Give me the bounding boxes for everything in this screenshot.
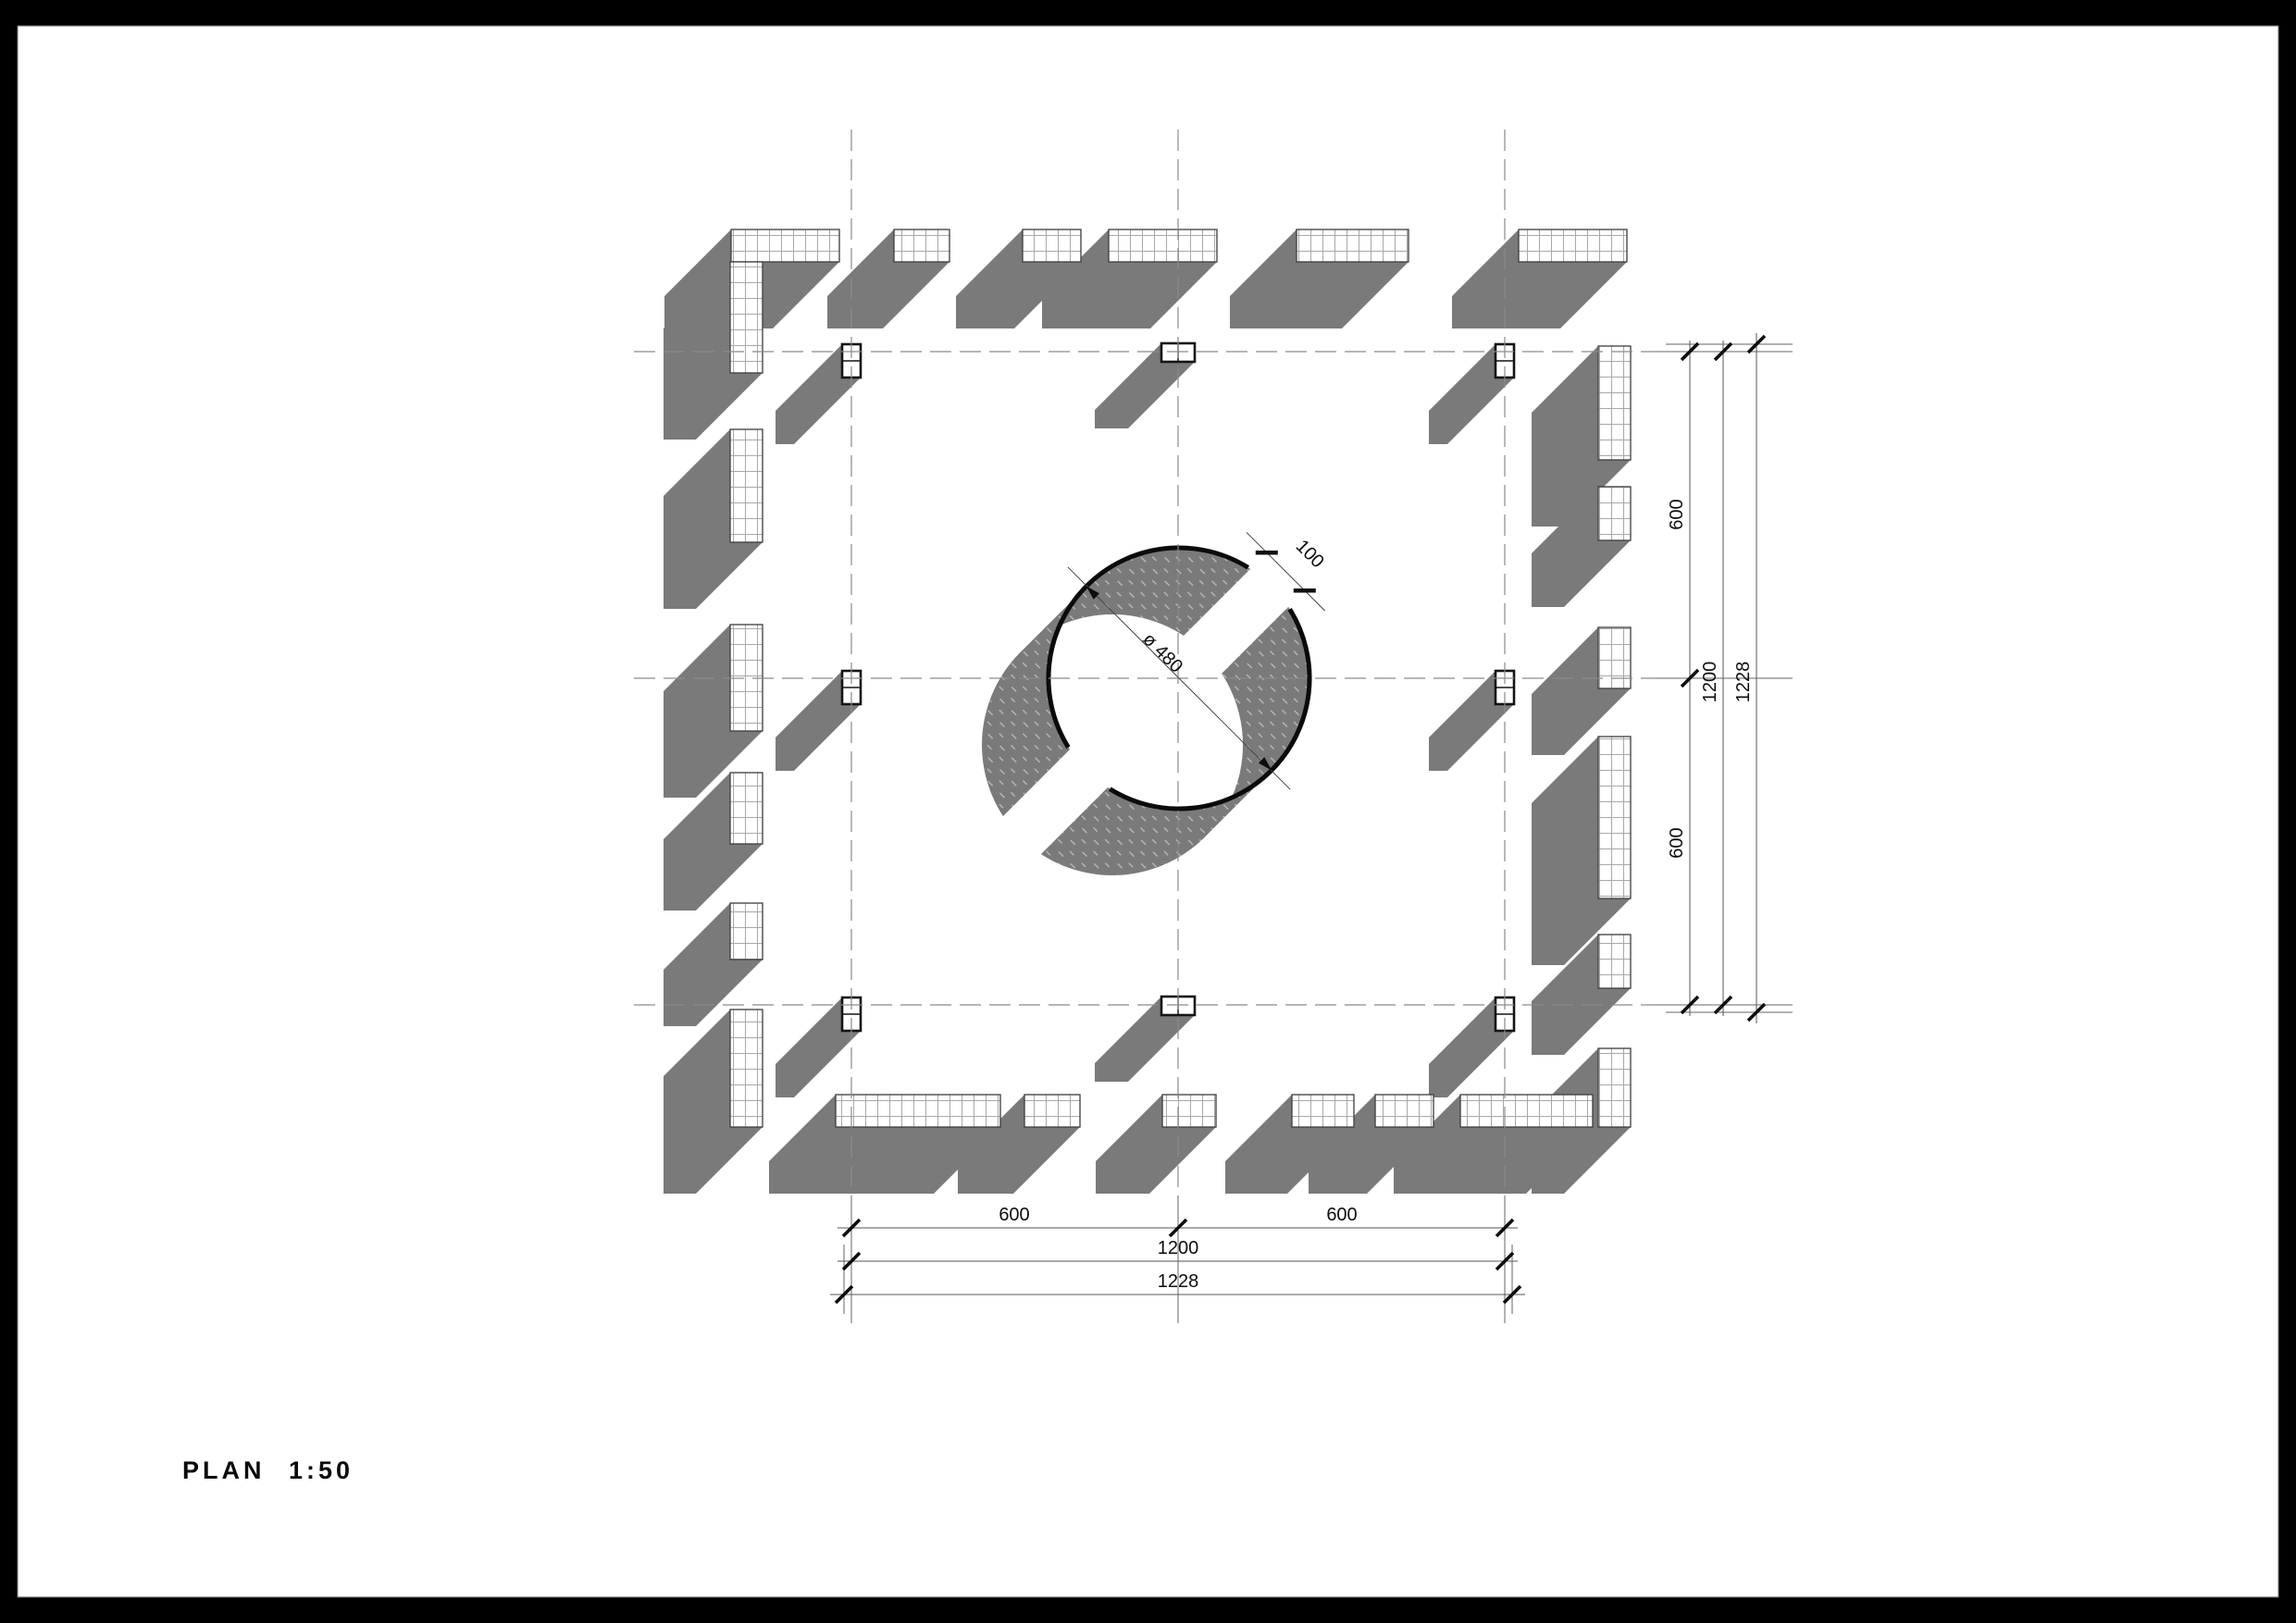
wall-segment bbox=[1297, 229, 1409, 262]
wall-segment bbox=[1162, 1095, 1216, 1127]
wall-segment bbox=[836, 1095, 1000, 1127]
wall-segment bbox=[730, 903, 763, 960]
plan-drawing: 600 600 1200 1228 600 600 1200 1228 ø 48… bbox=[0, 0, 2296, 1623]
dim-label-1200: 1200 bbox=[1158, 1238, 1199, 1258]
wall-segment bbox=[1375, 1095, 1433, 1127]
drawing-sheet: 600 600 1200 1228 600 600 1200 1228 ø 48… bbox=[0, 0, 2296, 1623]
wall-segment bbox=[1598, 487, 1631, 540]
dim-label-1228-right: 1228 bbox=[1733, 662, 1754, 703]
wall-segment bbox=[730, 1010, 763, 1127]
wall-segment bbox=[1598, 346, 1631, 460]
dim-label-600-left: 600 bbox=[999, 1205, 1029, 1225]
dim-label-600-top: 600 bbox=[1667, 499, 1687, 529]
wall-segment bbox=[1598, 935, 1631, 988]
wall-segment bbox=[894, 229, 949, 262]
wall-segment bbox=[1598, 1048, 1631, 1127]
wall-segment bbox=[1519, 229, 1627, 262]
wall-segment bbox=[1598, 627, 1631, 688]
wall-segment bbox=[1109, 229, 1217, 262]
dim-label-600-right: 600 bbox=[1326, 1205, 1357, 1225]
wall-segment bbox=[1024, 1095, 1080, 1127]
wall-segment bbox=[730, 262, 763, 373]
wall-segment bbox=[730, 429, 763, 542]
wall-segment bbox=[1292, 1095, 1354, 1127]
dim-label-600-bottom: 600 bbox=[1667, 827, 1687, 858]
plan-title: PLAN 1:50 bbox=[182, 1456, 354, 1484]
wall-segment bbox=[731, 229, 839, 262]
wall-segment bbox=[730, 773, 763, 844]
wall-segment bbox=[1598, 737, 1631, 898]
dim-label-1228: 1228 bbox=[1158, 1271, 1199, 1292]
wall-segment bbox=[1023, 229, 1081, 262]
dim-label-1200-right: 1200 bbox=[1700, 662, 1720, 703]
wall-segment bbox=[1460, 1095, 1593, 1127]
